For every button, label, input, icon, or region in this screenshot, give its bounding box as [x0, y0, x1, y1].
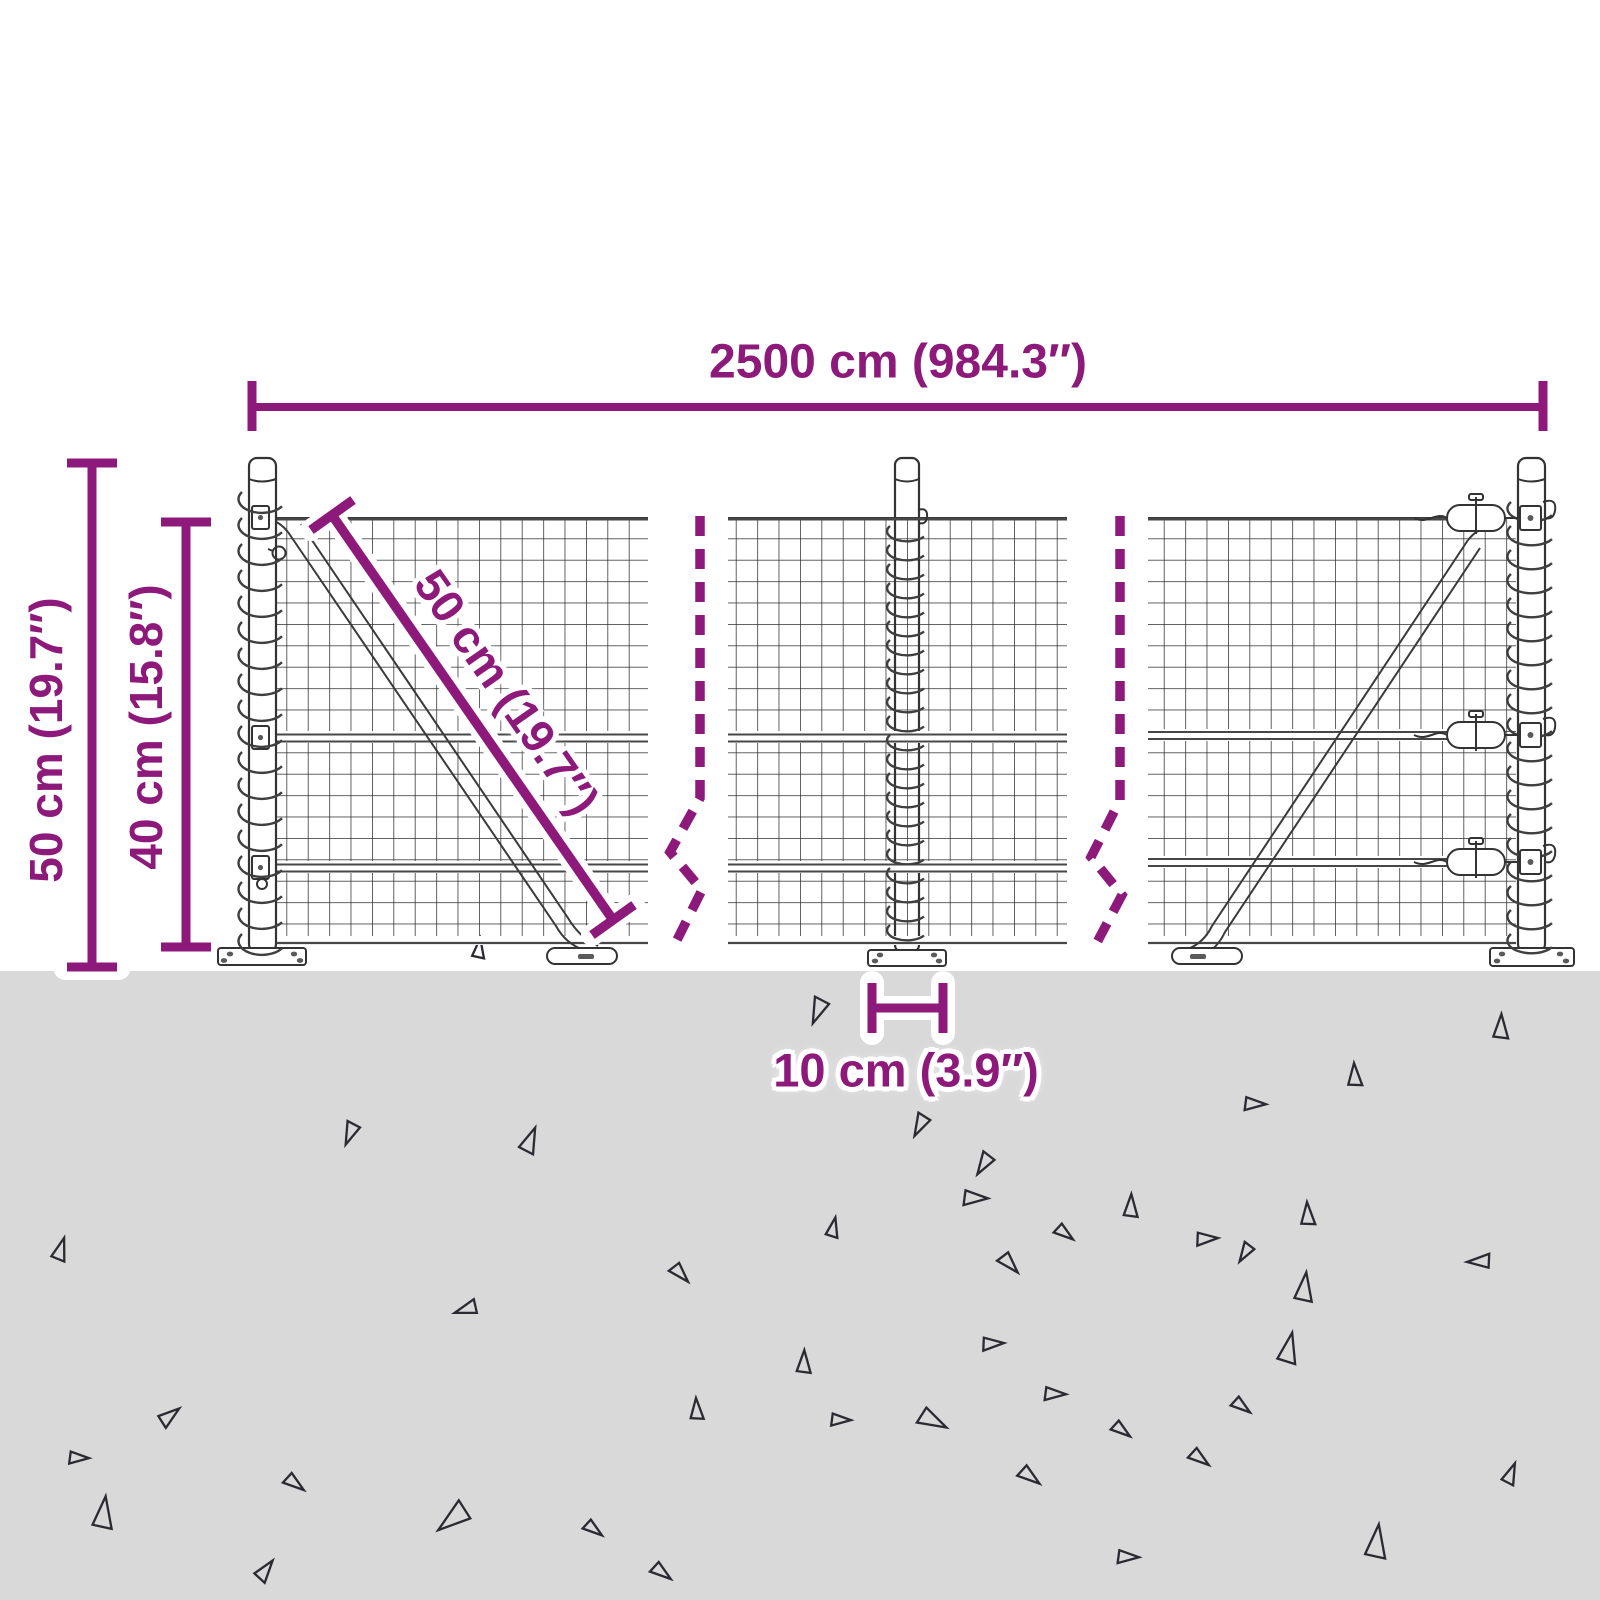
dimension-post-base-label: 10 cm (3.9″) — [773, 1043, 1038, 1098]
dimension-height-50cm — [66, 463, 118, 967]
wire-mesh-fence — [218, 458, 1574, 966]
dimension-mesh-height-label: 40 cm (15.8″) — [119, 584, 173, 869]
dimension-height-label: 50 cm (19.7″) — [19, 597, 73, 882]
base-plates — [218, 948, 1574, 966]
dimension-width-label: 2500 cm (984.3″) — [709, 335, 1087, 390]
right-post — [1518, 458, 1545, 952]
diagram-canvas — [0, 0, 1600, 1600]
fence-dimension-diagram: 2500 cm (984.3″) 50 cm (19.7″) 40 cm (15… — [0, 0, 1600, 1600]
